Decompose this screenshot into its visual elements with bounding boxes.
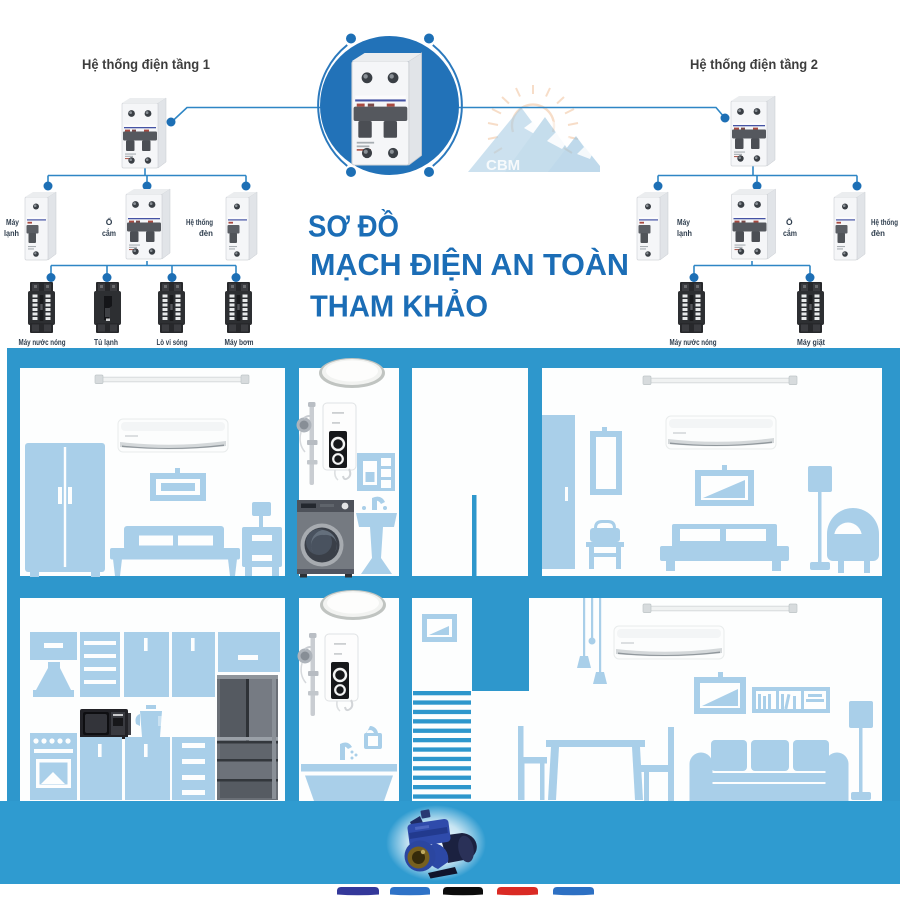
svg-text:lạnh: lạnh xyxy=(677,228,692,238)
svg-text:cắm: cắm xyxy=(102,227,116,238)
svg-text:Hệ thống: Hệ thống xyxy=(186,217,213,227)
svg-text:SƠ ĐỒ: SƠ ĐỒ xyxy=(308,208,399,244)
svg-text:Hệ thống điện tầng 2: Hệ thống điện tầng 2 xyxy=(690,57,818,73)
svg-text:MẠCH ĐIỆN AN TOÀN: MẠCH ĐIỆN AN TOÀN xyxy=(310,246,629,282)
svg-text:Máy: Máy xyxy=(677,217,690,227)
svg-text:Máy bơm: Máy bơm xyxy=(225,338,254,347)
svg-text:Máy nước nóng: Máy nước nóng xyxy=(670,338,717,347)
svg-text:Ổ: Ổ xyxy=(106,216,113,227)
svg-text:Máy: Máy xyxy=(6,217,19,227)
svg-text:Hệ thống: Hệ thống xyxy=(871,217,898,227)
svg-text:Lò vi sóng: Lò vi sóng xyxy=(157,338,188,347)
svg-text:cắm: cắm xyxy=(783,227,797,238)
svg-text:THAM KHẢO: THAM KHẢO xyxy=(310,289,488,324)
svg-text:đèn: đèn xyxy=(199,228,213,238)
svg-text:lạnh: lạnh xyxy=(4,228,19,238)
svg-text:Máy nước nóng: Máy nước nóng xyxy=(19,338,66,347)
svg-text:Máy giặt: Máy giặt xyxy=(797,338,825,347)
svg-text:Tủ lạnh: Tủ lạnh xyxy=(94,338,118,347)
svg-text:Hệ thống điện tầng 1: Hệ thống điện tầng 1 xyxy=(82,57,210,73)
svg-text:CBM: CBM xyxy=(486,157,520,174)
svg-text:đèn: đèn xyxy=(871,228,885,238)
svg-text:Ổ: Ổ xyxy=(786,216,793,227)
